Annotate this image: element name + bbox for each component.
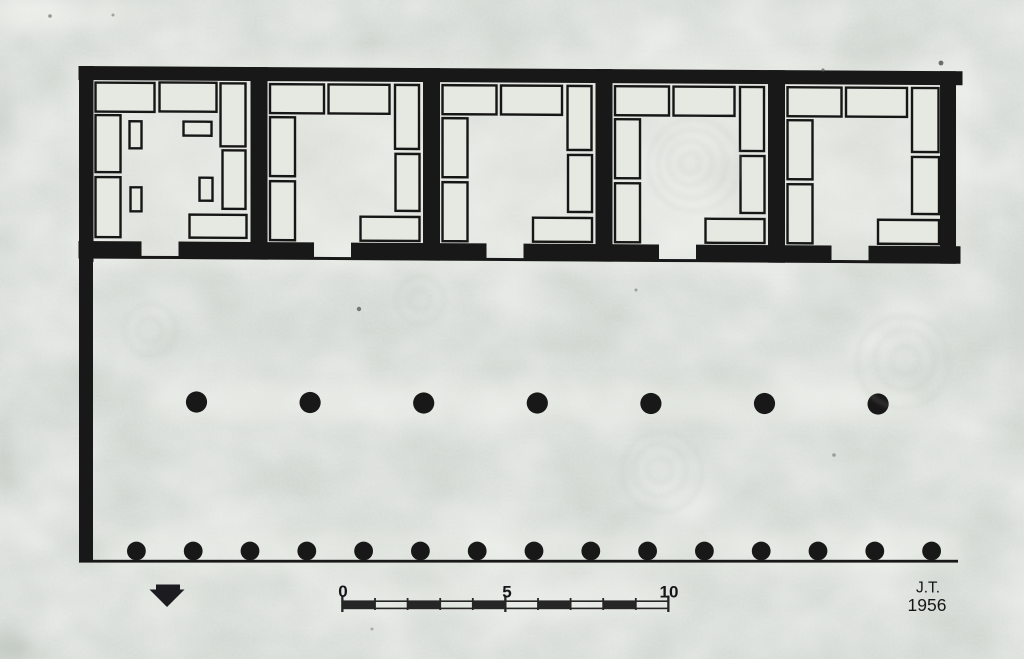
svg-text:1956: 1956 xyxy=(908,595,947,615)
svg-text:10: 10 xyxy=(660,583,679,602)
svg-text:J.T.: J.T. xyxy=(916,580,940,597)
svg-text:0: 0 xyxy=(338,582,347,601)
svg-text:5: 5 xyxy=(502,583,511,602)
